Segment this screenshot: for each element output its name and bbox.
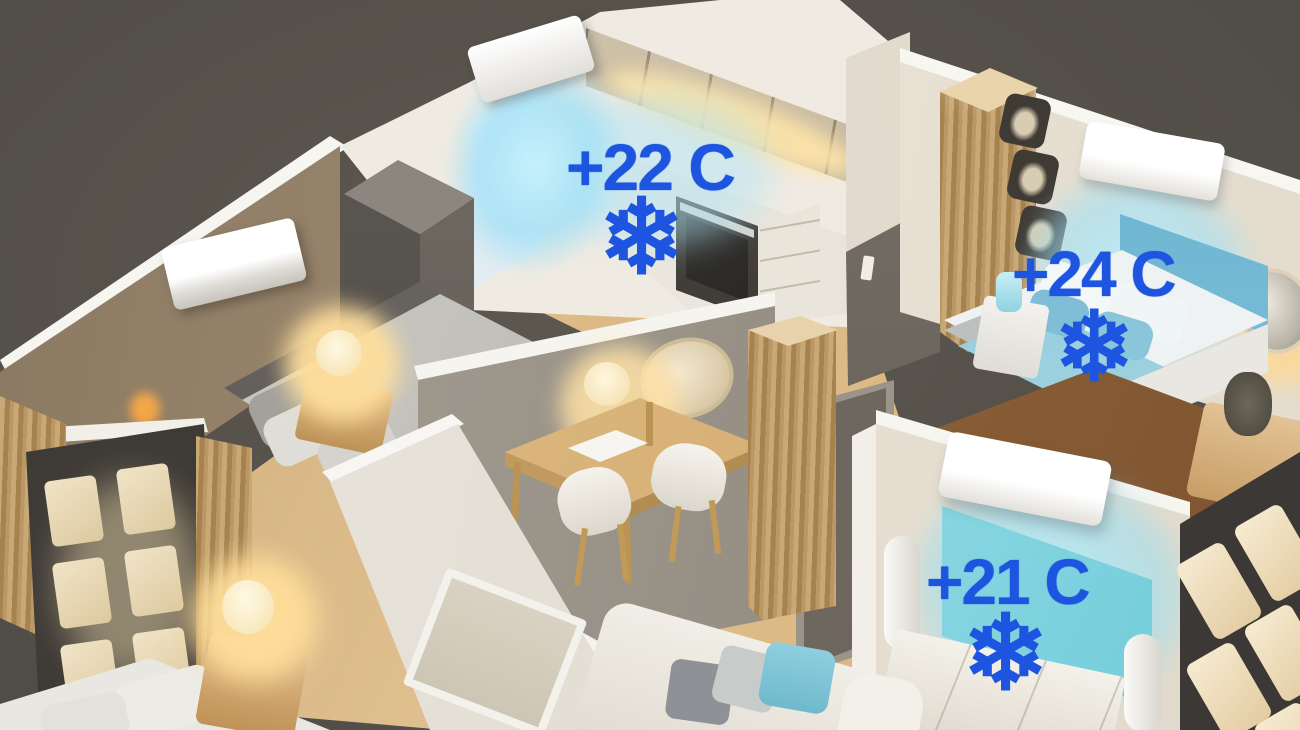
snowflake-icon: ❄ — [962, 602, 1049, 706]
speaker — [1124, 634, 1162, 730]
snowflake-icon: ❄ — [1054, 300, 1134, 396]
snowflake-icon: ❄ — [598, 186, 685, 290]
window-pane — [124, 545, 185, 618]
apartment-cutaway-render: +22 C ❄ +24 C ❄ +21 C ❄ — [0, 0, 1300, 730]
window-pane — [116, 463, 177, 536]
table-leg — [646, 402, 653, 446]
window-pane — [52, 557, 113, 630]
window-pane — [44, 475, 105, 548]
sofa-pillow — [757, 640, 837, 715]
table-lamp — [222, 580, 274, 634]
desk-lamp — [584, 362, 630, 406]
table-lamp — [316, 330, 362, 376]
potted-plant — [1224, 372, 1272, 436]
